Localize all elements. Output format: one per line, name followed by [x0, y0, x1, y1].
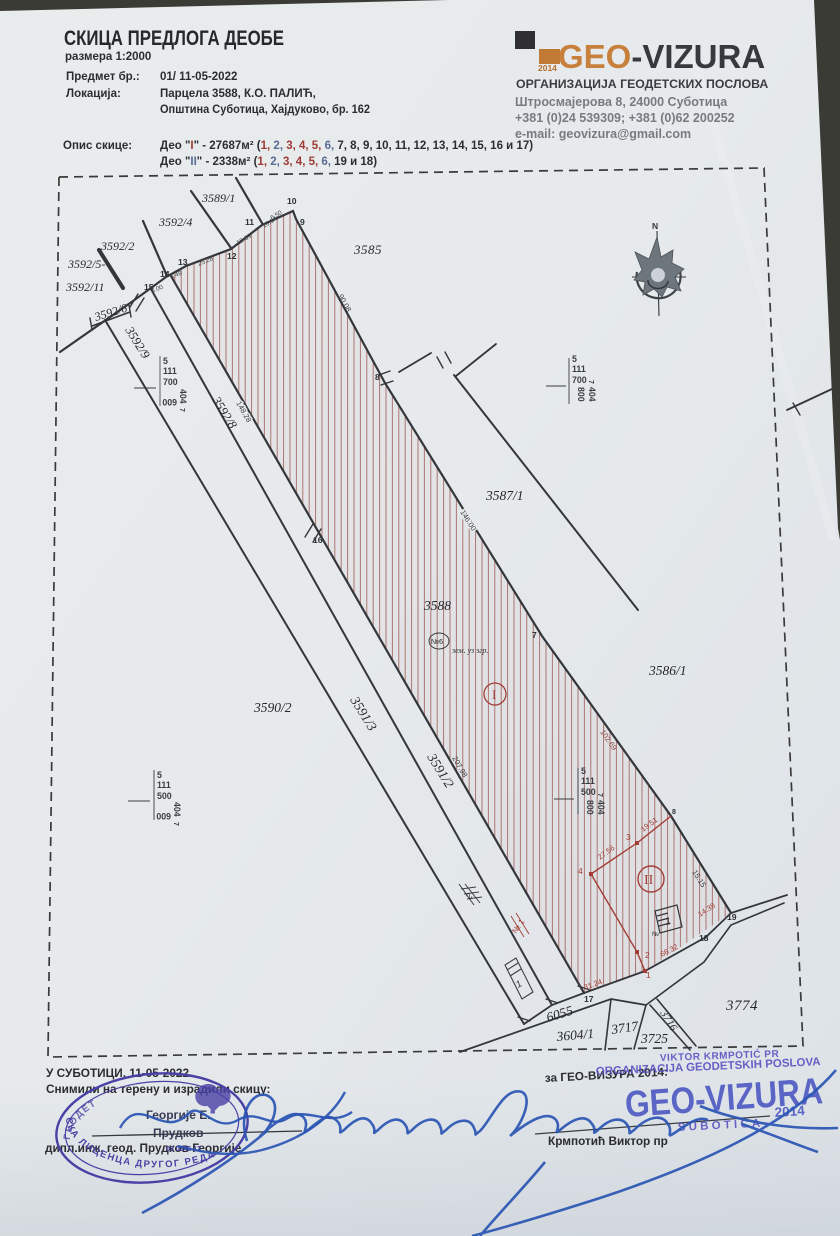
svg-text:3586/1: 3586/1 — [648, 663, 687, 678]
svg-text:e-mail: geovizura@gmail.com: e-mail: geovizura@gmail.com — [515, 127, 691, 141]
svg-text:13: 13 — [178, 257, 188, 267]
svg-text:404: 404 — [596, 800, 606, 815]
svg-text:3592/2: 3592/2 — [100, 239, 134, 253]
svg-text:2: 2 — [645, 950, 650, 960]
svg-text:3592/4: 3592/4 — [158, 215, 192, 229]
svg-text:3: 3 — [626, 832, 631, 842]
svg-text:7: 7 — [178, 408, 185, 412]
svg-text:7: 7 — [587, 380, 594, 384]
svg-text:Снимили на терену и израдили с: Снимили на терену и израдили скицу: — [46, 1082, 270, 1096]
svg-text:404: 404 — [172, 802, 182, 817]
svg-text:3774: 3774 — [725, 998, 758, 1014]
svg-text:Општина Суботица, Хајдуково, б: Општина Суботица, Хајдуково, бр. 162 — [160, 104, 370, 116]
svg-text:зем. уз згр.: зем. уз згр. — [451, 646, 488, 655]
svg-text:8: 8 — [672, 809, 676, 816]
svg-text:600: 600 — [162, 397, 177, 407]
svg-text:3590/2: 3590/2 — [253, 700, 292, 715]
svg-text:Крмпотић Виктор пр: Крмпотић Виктор пр — [548, 1134, 668, 1148]
svg-text:4: 4 — [578, 866, 583, 876]
svg-text:5: 5 — [163, 356, 168, 366]
svg-text:7: 7 — [596, 793, 603, 797]
svg-text:01/ 11-05-2022: 01/ 11-05-2022 — [160, 71, 237, 83]
svg-text:7: 7 — [172, 822, 179, 826]
svg-text:3589/1: 3589/1 — [201, 191, 235, 205]
svg-text:Део "II" - 2338м² (1, 2, 3, 4,: Део "II" - 2338м² (1, 2, 3, 4, 5, 6, 19 … — [160, 156, 377, 168]
svg-text:5: 5 — [572, 354, 577, 364]
svg-text:размера 1:2000: размера 1:2000 — [65, 51, 151, 63]
svg-text:500: 500 — [581, 787, 596, 797]
svg-text:111: 111 — [572, 364, 586, 374]
svg-text:Штросмајерова 8, 24000 Суботиц: Штросмајерова 8, 24000 Суботица — [515, 95, 728, 109]
svg-text:3725: 3725 — [640, 1031, 668, 1046]
svg-text:Део "I" - 27687м² (1, 2, 3, 4,: Део "I" - 27687м² (1, 2, 3, 4, 5, 6, 7, … — [160, 140, 533, 152]
svg-text:№6: №6 — [431, 637, 443, 646]
svg-text:2014: 2014 — [538, 63, 557, 73]
svg-text:3588: 3588 — [423, 598, 451, 613]
svg-text:12: 12 — [227, 251, 237, 261]
svg-text:14: 14 — [160, 269, 170, 279]
svg-text:17: 17 — [584, 994, 594, 1004]
svg-text:Предмет бр.:: Предмет бр.: — [66, 71, 140, 83]
svg-text:19: 19 — [727, 912, 737, 922]
svg-text:3592/11: 3592/11 — [65, 280, 104, 294]
svg-text:10: 10 — [287, 196, 297, 206]
svg-text:5: 5 — [157, 770, 162, 780]
svg-text:7: 7 — [532, 630, 537, 640]
svg-text:700: 700 — [163, 377, 178, 387]
svg-text:111: 111 — [581, 776, 595, 786]
svg-text:800: 800 — [576, 387, 586, 402]
svg-text:800: 800 — [585, 800, 595, 815]
svg-text:3592/5-: 3592/5- — [67, 257, 105, 271]
svg-text:+381 (0)24 539309; +381 (0)62: +381 (0)24 539309; +381 (0)62 200252 — [515, 111, 735, 125]
svg-text:СКИЦА ПРЕДЛОГА ДЕОБЕ: СКИЦА ПРЕДЛОГА ДЕОБЕ — [64, 27, 284, 50]
svg-text:700: 700 — [572, 375, 587, 385]
svg-text:15: 15 — [144, 282, 154, 292]
svg-text:I: I — [492, 687, 496, 702]
svg-text:ОРГАНИЗАЦИЈА ГЕОДЕТСКИХ ПОСЛОВ: ОРГАНИЗАЦИЈА ГЕОДЕТСКИХ ПОСЛОВА — [516, 77, 768, 91]
svg-text:1: 1 — [646, 970, 651, 980]
svg-text:5: 5 — [581, 766, 586, 776]
svg-text:9: 9 — [300, 217, 305, 227]
svg-text:11: 11 — [245, 217, 254, 227]
svg-text:№: № — [652, 931, 659, 938]
svg-text:Парцела 3588, К.О. ПАЛИЋ,: Парцела 3588, К.О. ПАЛИЋ, — [160, 88, 316, 100]
svg-text:8: 8 — [375, 372, 380, 382]
svg-text:II: II — [644, 873, 654, 888]
svg-text:404: 404 — [587, 387, 597, 402]
svg-text:111: 111 — [157, 780, 171, 790]
svg-text:Опис скице:: Опис скице: — [63, 140, 132, 152]
svg-text:3585: 3585 — [353, 242, 382, 257]
svg-text:111: 111 — [163, 366, 177, 376]
svg-text:GEO-VIZURA: GEO-VIZURA — [558, 38, 765, 75]
svg-text:500: 500 — [157, 791, 172, 801]
svg-text:16: 16 — [313, 535, 323, 545]
svg-text:Локација:: Локација: — [66, 88, 121, 100]
svg-text:3587/1: 3587/1 — [485, 488, 524, 503]
svg-text:Прудков: Прудков — [153, 1126, 203, 1140]
svg-text:404: 404 — [178, 389, 188, 404]
svg-text:18: 18 — [699, 933, 709, 943]
svg-text:N: N — [652, 221, 658, 231]
svg-text:600: 600 — [156, 811, 171, 821]
